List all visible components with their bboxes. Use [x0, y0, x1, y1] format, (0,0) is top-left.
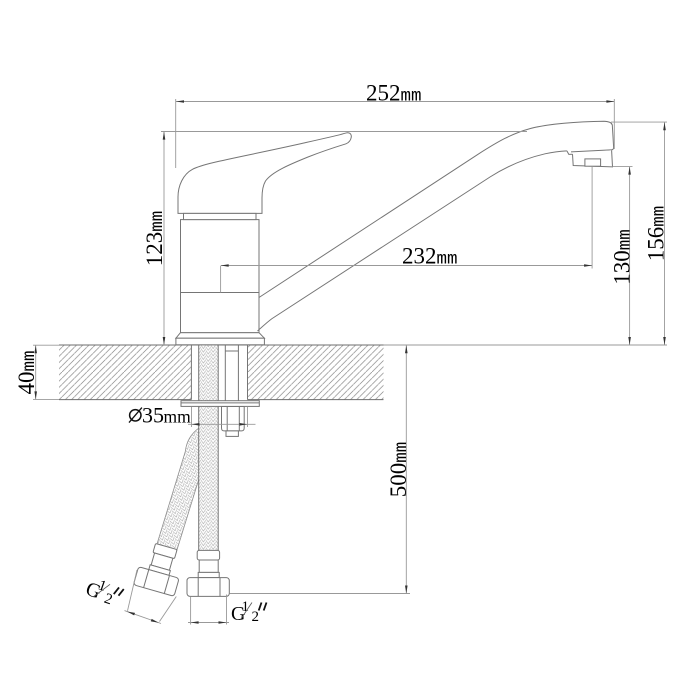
svg-text:35: 35: [142, 402, 164, 427]
svg-text:mm: mm: [164, 406, 192, 426]
svg-text:2: 2: [252, 609, 260, 625]
